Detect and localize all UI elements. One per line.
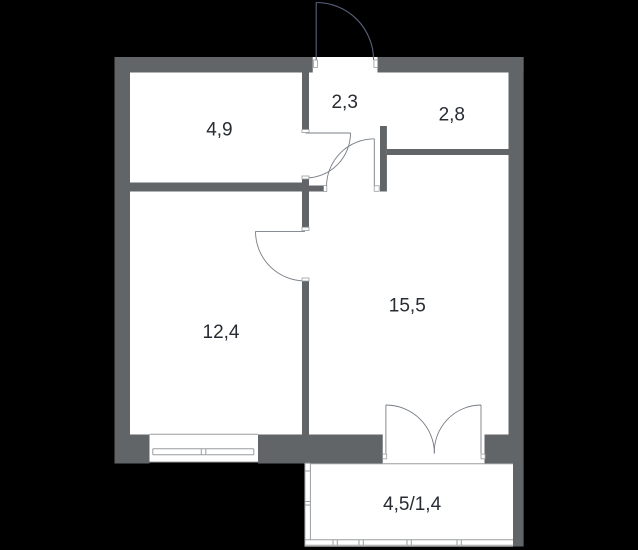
svg-text:2,3: 2,3 (331, 92, 357, 113)
svg-text:12,4: 12,4 (203, 322, 240, 343)
svg-text:4,9: 4,9 (206, 119, 232, 140)
svg-text:2,8: 2,8 (439, 105, 465, 126)
svg-text:4,5/1,4: 4,5/1,4 (383, 494, 442, 515)
svg-text:15,5: 15,5 (389, 295, 426, 316)
